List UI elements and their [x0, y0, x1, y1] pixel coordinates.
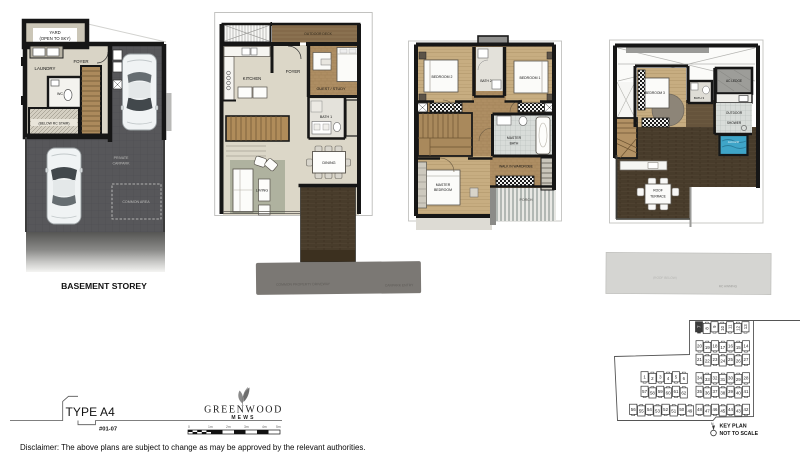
svg-text:11: 11 [728, 324, 733, 329]
svg-text:24: 24 [720, 358, 725, 363]
svg-text:TYPE A4: TYPE A4 [66, 405, 116, 419]
svg-text:WC: WC [57, 92, 63, 96]
svg-text:4m: 4m [262, 425, 267, 429]
svg-text:FOYER: FOYER [73, 59, 88, 64]
svg-text:1m: 1m [208, 425, 213, 429]
svg-text:WALK IN WARDROBE: WALK IN WARDROBE [499, 165, 533, 169]
svg-text:27: 27 [744, 357, 749, 362]
svg-text:YARD: YARD [49, 30, 60, 35]
svg-text:42: 42 [744, 407, 749, 412]
svg-text:19: 19 [705, 345, 710, 350]
svg-text:21: 21 [697, 357, 702, 362]
svg-text:TERRACE: TERRACE [650, 195, 667, 199]
svg-text:BATH 2: BATH 2 [480, 79, 491, 83]
svg-text:3m: 3m [244, 425, 249, 429]
svg-text:31: 31 [720, 377, 725, 382]
svg-text:36: 36 [705, 390, 710, 395]
svg-text:BEDROOM 1: BEDROOM 1 [519, 76, 540, 80]
svg-text:OUTDOOR: OUTDOOR [726, 111, 743, 115]
svg-text:20: 20 [697, 343, 702, 348]
svg-text:53: 53 [655, 408, 660, 413]
svg-text:25: 25 [728, 357, 733, 362]
svg-text:40: 40 [736, 390, 741, 395]
svg-text:DINING: DINING [322, 161, 335, 165]
svg-text:15: 15 [736, 345, 741, 350]
svg-text:BEDROOM 3: BEDROOM 3 [645, 91, 665, 95]
svg-text:(BELOW RC STAIR): (BELOW RC STAIR) [38, 122, 69, 126]
svg-text:CARPARK: CARPARK [112, 162, 130, 166]
svg-text:13: 13 [743, 324, 748, 329]
svg-text:KITCHEN: KITCHEN [243, 76, 261, 81]
svg-text:RC AWNING: RC AWNING [719, 284, 738, 288]
svg-text:58: 58 [650, 390, 655, 395]
svg-text:PORCH: PORCH [520, 198, 533, 202]
svg-text:AC LEDGE: AC LEDGE [726, 79, 742, 83]
svg-text:ROOF: ROOF [653, 189, 663, 193]
svg-text:61: 61 [674, 389, 679, 394]
svg-text:NOT TO SCALE: NOT TO SCALE [720, 431, 759, 437]
svg-text:OUTDOOR DECK: OUTDOOR DECK [304, 32, 332, 36]
svg-text:MEWS: MEWS [231, 415, 255, 421]
svg-text:23: 23 [713, 357, 718, 362]
svg-text:16: 16 [728, 343, 733, 348]
svg-text:51: 51 [671, 408, 676, 413]
svg-text:14: 14 [744, 343, 749, 348]
svg-text:Disclaimer: The above plans ar: Disclaimer: The above plans are subject … [20, 443, 366, 452]
svg-text:17: 17 [720, 345, 725, 350]
svg-text:18: 18 [713, 343, 718, 348]
svg-text:33: 33 [705, 377, 710, 382]
svg-text:12: 12 [735, 325, 740, 330]
svg-text:35: 35 [697, 389, 702, 394]
svg-text:BEDROOM: BEDROOM [434, 188, 452, 192]
svg-text:30: 30 [728, 375, 733, 380]
svg-text:BATH: BATH [510, 142, 519, 146]
svg-text:10: 10 [720, 325, 725, 330]
svg-text:50: 50 [679, 407, 684, 412]
svg-text:BASEMENT STOREY: BASEMENT STOREY [61, 281, 147, 291]
svg-text:49: 49 [687, 408, 692, 413]
svg-text:44: 44 [728, 407, 733, 412]
svg-text:55: 55 [639, 408, 644, 413]
svg-text:(OPEN TO SKY): (OPEN TO SKY) [39, 36, 71, 41]
svg-text:62: 62 [681, 390, 686, 395]
svg-text:PRIVATE: PRIVATE [114, 156, 129, 160]
svg-text:COMMON AREA: COMMON AREA [122, 200, 150, 204]
svg-text:56: 56 [631, 407, 636, 412]
svg-text:BEDROOM 2: BEDROOM 2 [431, 75, 452, 79]
svg-text:34: 34 [697, 375, 702, 380]
svg-text:GREENWOOD: GREENWOOD [204, 405, 283, 416]
svg-text:43: 43 [736, 408, 741, 413]
svg-text:BATH 3: BATH 3 [694, 96, 705, 100]
svg-text:48: 48 [697, 407, 702, 412]
svg-text:59: 59 [658, 389, 663, 394]
svg-text:GUEST / STUDY: GUEST / STUDY [316, 87, 346, 91]
svg-text:54: 54 [647, 407, 652, 412]
svg-text:22: 22 [705, 358, 710, 363]
svg-text:SHOWER: SHOWER [727, 121, 742, 125]
svg-text:MASTER: MASTER [507, 136, 522, 140]
svg-text:LIVING: LIVING [256, 189, 268, 193]
svg-text:FOYER: FOYER [286, 69, 300, 74]
svg-text:60: 60 [666, 390, 671, 395]
svg-text:CARPARK ENTRY: CARPARK ENTRY [385, 283, 414, 287]
svg-text:52: 52 [663, 407, 668, 412]
svg-text:26: 26 [736, 358, 741, 363]
svg-text:BATH 1: BATH 1 [320, 115, 332, 119]
svg-text:JACUZZI: JACUZZI [728, 140, 740, 144]
svg-text:#01-07: #01-07 [99, 427, 117, 433]
svg-text:COMMON PROPERTY DRIVEWAY: COMMON PROPERTY DRIVEWAY [276, 282, 331, 287]
svg-text:46: 46 [713, 407, 718, 412]
svg-text:45: 45 [720, 408, 725, 413]
svg-text:38: 38 [720, 390, 725, 395]
svg-text:LAUNDRY: LAUNDRY [35, 66, 56, 71]
svg-text:2m: 2m [226, 425, 231, 429]
svg-text:KEY PLAN: KEY PLAN [720, 424, 747, 430]
svg-text:MASTER: MASTER [436, 183, 451, 187]
svg-text:47: 47 [705, 408, 710, 413]
svg-text:37: 37 [713, 389, 718, 394]
svg-text:41: 41 [744, 389, 749, 394]
svg-text:28: 28 [744, 375, 749, 380]
svg-text:0: 0 [188, 425, 190, 429]
svg-text:39: 39 [728, 389, 733, 394]
svg-text:32: 32 [713, 375, 718, 380]
svg-text:5m: 5m [276, 425, 281, 429]
svg-text:29: 29 [736, 377, 741, 382]
svg-text:(ROOF BELOW): (ROOF BELOW) [653, 276, 677, 280]
svg-text:57: 57 [642, 389, 647, 394]
